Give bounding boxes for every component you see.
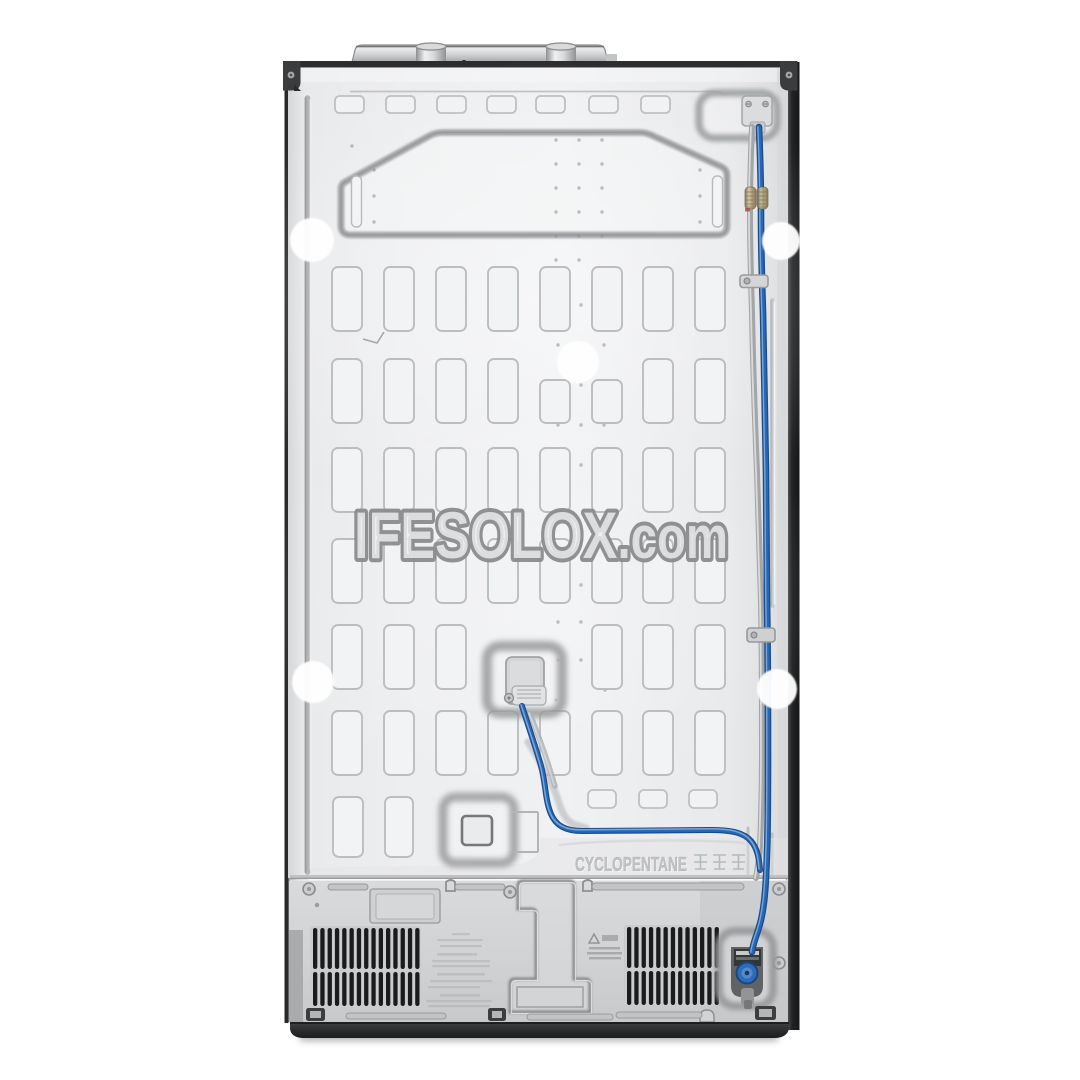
svg-text:CYCLOPENTANE: CYCLOPENTANE: [575, 854, 687, 876]
svg-text:IFESOLOX.com: IFESOLOX.com: [354, 498, 728, 572]
